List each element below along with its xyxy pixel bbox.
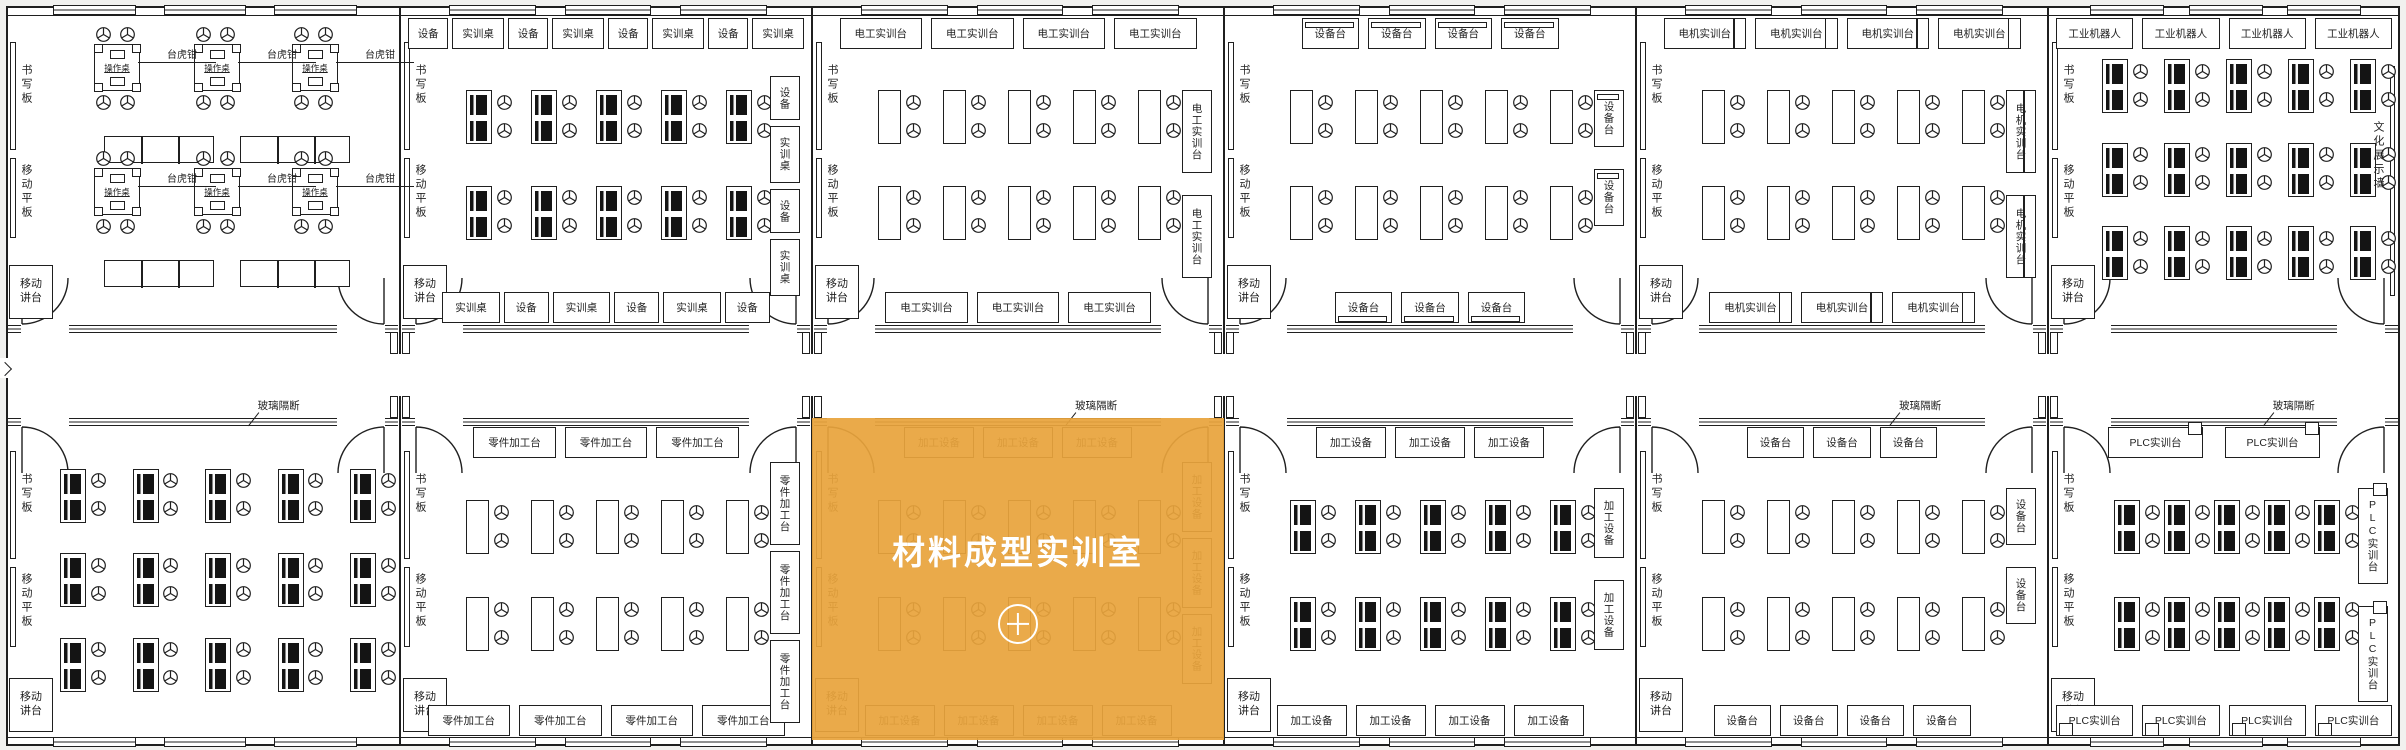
stool-icon — [1924, 217, 1941, 234]
monitor-icon — [535, 191, 552, 211]
window-segment — [680, 737, 767, 747]
pc-desk — [2350, 226, 2376, 280]
pc-desk — [2314, 597, 2340, 651]
monitor-icon — [1359, 628, 1376, 648]
stool-icon — [753, 629, 770, 646]
pc-desk — [531, 186, 557, 240]
stool-icon — [1989, 601, 2006, 618]
equipment-label: 设备台 — [1381, 26, 1413, 41]
mobile-lectern-label: 移动讲台 — [1236, 278, 1262, 306]
pc-desk — [1355, 597, 1381, 651]
monitor-icon — [2168, 231, 2185, 251]
equipment-label: 电工实训台 — [992, 300, 1045, 315]
desk — [661, 500, 684, 554]
monitor-icon — [209, 669, 226, 689]
equipment-label: 电机实训台 — [1953, 26, 2006, 41]
monitor-icon — [1294, 628, 1311, 648]
pc-desk — [2214, 500, 2240, 554]
stool-icon — [493, 629, 510, 646]
door-jamb — [1638, 332, 1646, 354]
stool-icon — [2194, 601, 2211, 618]
mobile-panel-label: 移动平板 — [1238, 164, 1252, 240]
stool-icon — [293, 150, 310, 167]
stool-icon — [1317, 94, 1334, 111]
wall — [1223, 6, 1226, 354]
monitor-icon — [2292, 64, 2309, 84]
stool-icon — [1989, 189, 2006, 206]
desk — [1008, 90, 1031, 144]
stool-icon — [307, 585, 324, 602]
pc-desk — [2214, 597, 2240, 651]
pc-desk — [2114, 597, 2140, 651]
monitor-icon — [1359, 505, 1376, 525]
mobile-lectern-label: 移动讲台 — [18, 691, 44, 719]
equipment-label: 电工实训台 — [1083, 300, 1136, 315]
equipment-label-box: 零件加工台 — [473, 427, 556, 458]
window-segment — [1389, 737, 1476, 747]
monitor-icon — [282, 669, 299, 689]
pc-desk — [531, 90, 557, 144]
equipment-label-box: 实训桌 — [442, 292, 500, 323]
equipment-label-box: 实训桌 — [770, 239, 800, 296]
room-highlight[interactable]: 材料成型实训室 — [812, 418, 1224, 740]
equipment-label: 加工设备 — [1291, 713, 1333, 728]
work-table-divider — [314, 261, 316, 288]
stool-icon — [1515, 532, 1532, 549]
equipment-label-box: 设备 — [408, 18, 448, 49]
equipment-label-box: 电工实训台 — [1068, 292, 1151, 323]
equipment-label-box: 工业机器人 — [2142, 18, 2219, 49]
equipment-label-box: 电机实训台 — [2006, 195, 2036, 278]
equipment-label-box: PLC实训台 — [2108, 427, 2203, 458]
workbench-corner — [330, 207, 339, 216]
stool-icon — [1989, 94, 2006, 111]
equipment-label: 电工实训台 — [1129, 26, 1182, 41]
pc-desk — [2164, 500, 2190, 554]
monitor-icon — [1424, 628, 1441, 648]
mobile-panel-label: 移动平板 — [1650, 164, 1664, 240]
vise-label: 台虎钳 — [336, 46, 414, 63]
stool-icon — [1382, 94, 1399, 111]
window-segment — [1916, 737, 2003, 747]
mobile-lectern-label: 移动讲台 — [1648, 691, 1674, 719]
plus-icon[interactable] — [998, 604, 1038, 644]
mobile-lectern-label: 移动讲台 — [18, 278, 44, 306]
equipment-label-box: PLC实训台 — [2358, 488, 2388, 584]
window-segment — [2189, 737, 2263, 747]
desk — [1138, 186, 1161, 240]
pc-desk — [2164, 597, 2190, 651]
monitor-icon — [1554, 505, 1571, 525]
writing-board-label: 书写板 — [826, 64, 840, 134]
desk — [596, 597, 619, 651]
writing-board — [1640, 451, 1646, 559]
equipment-label: 设备 — [618, 26, 639, 41]
equipment-label-box: 设备台 — [1302, 18, 1360, 49]
stool-icon — [95, 150, 112, 167]
mobile-lectern-label: 移动讲台 — [1648, 278, 1674, 306]
stool-icon — [195, 218, 212, 235]
equipment-label-box: 设备 — [708, 18, 748, 49]
stool-icon — [626, 217, 643, 234]
stool-icon — [1859, 532, 1876, 549]
equipment-label-box: 电工实训台 — [840, 18, 923, 49]
pc-desk — [278, 469, 304, 523]
stool-icon — [1447, 94, 1464, 111]
work-table-divider — [141, 137, 143, 164]
equipment-label-box: 电工实训台 — [1182, 195, 1212, 278]
culture-wall-label: 文化展示墙 — [2372, 121, 2386, 211]
stool-icon — [1385, 629, 1402, 646]
label-box-bar — [1504, 22, 1554, 28]
window-segment — [274, 737, 357, 747]
monitor-icon — [2230, 257, 2247, 277]
monitor-icon — [2268, 531, 2285, 551]
equipment-label-box: 设备 — [614, 292, 659, 323]
stool-icon — [1989, 217, 2006, 234]
equipment-label-box: 工业机器人 — [2056, 18, 2133, 49]
equipment-label-box: 设备 — [608, 18, 648, 49]
pc-desk — [1420, 597, 1446, 651]
equipment-label: 实训桌 — [778, 137, 793, 172]
stool-icon — [1859, 601, 1876, 618]
stool-icon — [691, 189, 708, 206]
door-jamb — [802, 332, 810, 354]
stool-icon — [1320, 504, 1337, 521]
equipment-label-box: 电工实训台 — [1114, 18, 1197, 49]
pc-desk — [2114, 500, 2140, 554]
stool-icon — [2294, 601, 2311, 618]
workbench-corner — [330, 83, 339, 92]
glass-partition-wall — [1638, 418, 1651, 426]
pc-desk — [2314, 500, 2340, 554]
pc-desk — [2226, 59, 2252, 113]
equipment-label-box: 加工设备 — [1395, 427, 1465, 458]
label-box-tag — [2373, 601, 2387, 614]
equipment-label: 零件加工台 — [580, 435, 633, 450]
monitor-icon — [137, 584, 154, 604]
stool-icon — [691, 94, 708, 111]
stool-icon — [1165, 94, 1182, 111]
workbench-center — [308, 201, 323, 210]
stool-icon — [558, 629, 575, 646]
mobile-panel-label: 移动平板 — [414, 164, 428, 240]
workbench-corner — [94, 44, 103, 53]
pc-desk — [1290, 597, 1316, 651]
stool-icon — [162, 585, 179, 602]
equipment-label: 设备台 — [1602, 180, 1617, 215]
pc-desk — [726, 186, 752, 240]
stool-icon — [2194, 504, 2211, 521]
stool-icon — [496, 94, 513, 111]
monitor-icon — [137, 643, 154, 663]
glass-partition-wall — [2111, 418, 2337, 426]
monitor-icon — [2168, 257, 2185, 277]
equipment-label: 电机实训台 — [1816, 300, 1869, 315]
equipment-label-box: PLC实训台 — [2056, 705, 2133, 736]
mobile-panel — [816, 158, 822, 238]
stool-icon — [1794, 532, 1811, 549]
equipment-label: 加工设备 — [1602, 592, 1617, 638]
equipment-label-box: 电机实训台 — [2006, 90, 2036, 173]
equipment-label: 电机实训台 — [1679, 26, 1732, 41]
window-segment — [449, 737, 536, 747]
floor-plan: 书写板移动平板移动讲台操作桌台虎钳操作桌台虎钳操作桌台虎钳操作桌台虎钳操作桌台虎… — [0, 0, 2406, 750]
equipment-label-box: 设备台 — [1501, 18, 1559, 49]
pc-desk — [1485, 597, 1511, 651]
pc-desk — [2102, 226, 2128, 280]
monitor-icon — [137, 669, 154, 689]
stool-icon — [162, 557, 179, 574]
monitor-icon — [2106, 148, 2123, 168]
stool-icon — [905, 122, 922, 139]
mobile-lectern: 移动讲台 — [815, 265, 859, 319]
label-box-bar — [1404, 316, 1454, 322]
writing-board-label: 书写板 — [414, 64, 428, 134]
mobile-panel-label: 移动平板 — [1238, 573, 1252, 649]
stool-icon — [2144, 532, 2161, 549]
stool-icon — [2294, 629, 2311, 646]
equipment-label: 设备台 — [1414, 300, 1446, 315]
stool-icon — [2380, 63, 2397, 80]
monitor-icon — [354, 643, 371, 663]
equipment-label: 加工设备 — [1602, 500, 1617, 546]
monitor-icon — [535, 121, 552, 141]
stool-icon — [317, 26, 334, 43]
vise-label: 台虎钳 — [336, 170, 414, 187]
workbench-corner — [292, 207, 301, 216]
equipment-label-box: 零件加工台 — [565, 427, 648, 458]
monitor-icon — [2354, 148, 2371, 168]
door-arc — [1573, 426, 1621, 474]
monitor-icon — [1424, 531, 1441, 551]
writing-board-label: 书写板 — [1238, 64, 1252, 134]
stool-icon — [1385, 504, 1402, 521]
equipment-label-box: 零件加工台 — [428, 705, 511, 736]
stool-icon — [1035, 189, 1052, 206]
door-arc — [1239, 426, 1287, 474]
desk — [1897, 90, 1920, 144]
stool-icon — [380, 585, 397, 602]
monitor-icon — [470, 217, 487, 237]
stool-icon — [119, 26, 136, 43]
equipment-label-box: 实训桌 — [552, 18, 604, 49]
stool-icon — [1317, 122, 1334, 139]
stool-icon — [1859, 504, 1876, 521]
stool-icon — [1515, 629, 1532, 646]
label-box-tag — [2318, 723, 2332, 736]
stool-icon — [219, 94, 236, 111]
door-jamb — [390, 332, 398, 354]
door-jamb — [402, 332, 410, 354]
label-box-tag — [2232, 723, 2246, 736]
stool-icon — [2194, 146, 2211, 163]
equipment-label: 零件加工台 — [488, 435, 541, 450]
door-arc — [1985, 277, 2033, 325]
stool-icon — [293, 94, 310, 111]
label-box-divider — [2023, 195, 2025, 277]
monitor-icon — [2268, 628, 2285, 648]
equipment-label: 加工设备 — [1488, 435, 1530, 450]
door-jamb — [1214, 396, 1222, 418]
equipment-label: 设备台 — [1448, 26, 1480, 41]
desk — [1767, 186, 1790, 240]
stool-icon — [380, 641, 397, 658]
mobile-lectern: 移动讲台 — [1227, 678, 1271, 732]
mobile-panel-label: 移动平板 — [20, 573, 34, 649]
stool-icon — [195, 150, 212, 167]
stool-icon — [119, 218, 136, 235]
monitor-icon — [535, 217, 552, 237]
glass-partition-wall — [8, 325, 21, 333]
glass-partition-wall — [1621, 418, 1634, 426]
desk — [1962, 186, 1985, 240]
equipment-label-box: 实训桌 — [553, 292, 611, 323]
equipment-label-box: PLC实训台 — [2229, 705, 2306, 736]
label-box-tag — [2188, 422, 2202, 435]
monitor-icon — [2168, 628, 2185, 648]
equipment-label: PLC实训台 — [2155, 713, 2207, 728]
glass-partition-wall — [2385, 325, 2398, 333]
glass-partition-wall — [1699, 418, 1985, 426]
stool-icon — [626, 94, 643, 111]
equipment-label-box: 设备台 — [1435, 18, 1493, 49]
pc-desk — [2164, 59, 2190, 113]
wall — [6, 744, 2400, 746]
stool-icon — [2132, 174, 2149, 191]
stool-icon — [2256, 174, 2273, 191]
window-segment — [1273, 737, 1360, 747]
monitor-icon — [665, 121, 682, 141]
mobile-panel — [1228, 567, 1234, 647]
mobile-panel-label: 移动平板 — [20, 164, 34, 240]
pc-desk — [2102, 143, 2128, 197]
equipment-label-box: 电工实训台 — [885, 292, 968, 323]
mobile-lectern: 移动讲台 — [1639, 678, 1683, 732]
glass-partition-wall — [875, 325, 1161, 333]
equipment-label-box: 设备台 — [1780, 705, 1838, 736]
desk — [1073, 90, 1096, 144]
stool-icon — [1382, 122, 1399, 139]
stool-icon — [1729, 94, 1746, 111]
pc-desk — [726, 90, 752, 144]
equipment-label: 设备台 — [1926, 713, 1958, 728]
door-arc — [415, 426, 463, 474]
monitor-icon — [137, 558, 154, 578]
window-segment — [164, 5, 247, 15]
window-segment — [1389, 5, 1476, 15]
desk — [1355, 90, 1378, 144]
stool-icon — [1794, 601, 1811, 618]
stool-icon — [1317, 217, 1334, 234]
equipment-label: PLC实训台 — [2069, 713, 2121, 728]
work-table-divider — [314, 137, 316, 164]
writing-board — [2052, 42, 2058, 150]
stool-icon — [90, 641, 107, 658]
door-arc — [2337, 277, 2385, 325]
door-arc — [337, 426, 385, 474]
equipment-label: 设备 — [418, 26, 439, 41]
stool-icon — [905, 189, 922, 206]
workbench-center — [210, 201, 225, 210]
stool-icon — [90, 557, 107, 574]
equipment-label: 实训桌 — [562, 26, 594, 41]
stool-icon — [317, 150, 334, 167]
equipment-label: 设备 — [518, 26, 539, 41]
stool-icon — [688, 601, 705, 618]
monitor-icon — [209, 558, 226, 578]
stool-icon — [1450, 601, 1467, 618]
stool-icon — [1859, 629, 1876, 646]
wall — [2047, 396, 2050, 746]
stool-icon — [2256, 230, 2273, 247]
writing-board-label: 书写板 — [1238, 473, 1252, 543]
stool-icon — [1577, 94, 1594, 111]
stool-icon — [691, 217, 708, 234]
mobile-panel-label: 移动平板 — [1650, 573, 1664, 649]
monitor-icon — [2354, 90, 2371, 110]
equipment-label: 实训桌 — [762, 26, 794, 41]
door-jamb — [1626, 332, 1634, 354]
equipment-label-box: 电机实训台 — [1755, 18, 1838, 49]
monitor-icon — [64, 669, 81, 689]
desk — [1420, 186, 1443, 240]
door-jamb — [1626, 396, 1634, 418]
mobile-lectern-label: 移动讲台 — [824, 278, 850, 306]
mobile-panel — [1640, 567, 1646, 647]
monitor-icon — [2268, 505, 2285, 525]
door-jamb — [402, 396, 410, 418]
equipment-label-box: 设备台 — [1880, 427, 1938, 458]
equipment-label-box: PLC实训台 — [2315, 705, 2392, 736]
wall — [6, 6, 2400, 8]
pc-desk — [60, 553, 86, 607]
monitor-icon — [1489, 628, 1506, 648]
workbench-corner — [94, 83, 103, 92]
monitor-icon — [64, 558, 81, 578]
vise-label: 台虎钳 — [238, 170, 316, 187]
monitor-icon — [1489, 505, 1506, 525]
equipment-label: 设备台 — [1315, 26, 1347, 41]
mobile-panel — [2052, 158, 2058, 238]
door-arc — [2063, 426, 2111, 474]
desk — [1897, 500, 1920, 554]
stool-icon — [307, 641, 324, 658]
stool-icon — [623, 504, 640, 521]
monitor-icon — [2118, 628, 2135, 648]
equipment-label-box: 加工设备 — [1594, 488, 1624, 558]
stool-icon — [2256, 91, 2273, 108]
stool-icon — [2244, 532, 2261, 549]
stool-icon — [235, 500, 252, 517]
mobile-panel-label: 移动平板 — [414, 573, 428, 649]
stool-icon — [970, 94, 987, 111]
stool-icon — [626, 189, 643, 206]
stool-icon — [1450, 629, 1467, 646]
desk — [1008, 186, 1031, 240]
stool-icon — [90, 472, 107, 489]
stool-icon — [2318, 146, 2335, 163]
stool-icon — [1100, 217, 1117, 234]
monitor-icon — [665, 95, 682, 115]
stool-icon — [2256, 63, 2273, 80]
monitor-icon — [2230, 90, 2247, 110]
monitor-icon — [470, 121, 487, 141]
monitor-icon — [1294, 505, 1311, 525]
workbench-center — [110, 201, 125, 210]
label-box-divider — [2008, 18, 2010, 48]
stool-icon — [558, 601, 575, 618]
